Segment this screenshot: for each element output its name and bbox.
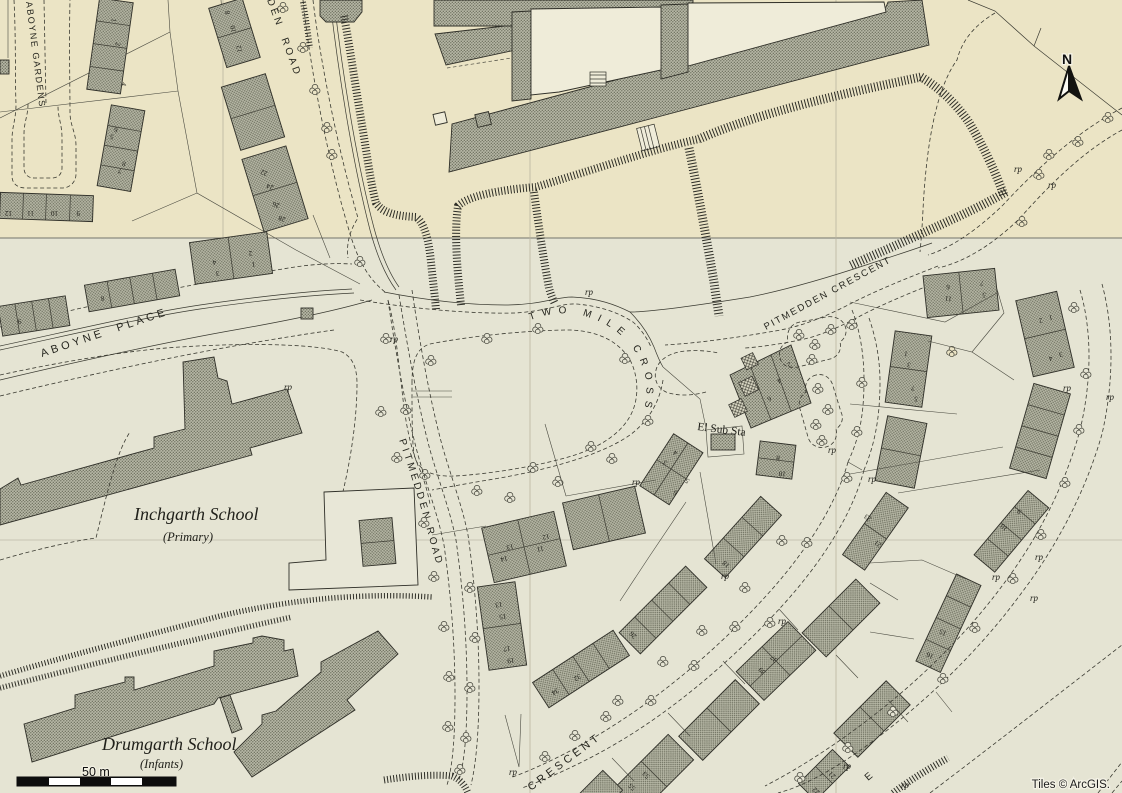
svg-text:rp: rp — [721, 571, 730, 581]
svg-text:rp: rp — [284, 382, 293, 392]
svg-text:Inchgarth School: Inchgarth School — [133, 504, 258, 524]
svg-text:N: N — [1062, 51, 1072, 67]
svg-text:11: 11 — [27, 209, 34, 217]
svg-text:rp: rp — [509, 767, 518, 777]
svg-text:Tiles © ArcGIS.: Tiles © ArcGIS. — [1032, 779, 1110, 791]
svg-text:rp: rp — [632, 477, 641, 487]
svg-text:10: 10 — [778, 469, 786, 478]
svg-text:rp: rp — [1106, 392, 1115, 402]
svg-text:9: 9 — [76, 209, 80, 217]
svg-text:rp: rp — [868, 474, 877, 484]
svg-text:rp: rp — [843, 761, 852, 771]
svg-text:rp: rp — [1063, 383, 1072, 393]
svg-text:10: 10 — [51, 209, 59, 217]
svg-text:rp: rp — [585, 287, 594, 297]
svg-text:rp: rp — [1030, 593, 1039, 603]
svg-text:12: 12 — [5, 209, 13, 217]
svg-text:rp: rp — [992, 572, 1001, 582]
svg-text:Drumgarth School: Drumgarth School — [101, 734, 237, 754]
svg-text:(Infants): (Infants) — [140, 757, 183, 771]
svg-text:rp: rp — [778, 616, 787, 626]
svg-text:rp: rp — [1035, 552, 1044, 562]
svg-text:(Primary): (Primary) — [163, 530, 213, 544]
svg-text:rp: rp — [828, 445, 837, 455]
svg-text:rp: rp — [1014, 164, 1023, 174]
svg-text:rp: rp — [1048, 180, 1057, 190]
svg-text:11: 11 — [944, 294, 952, 303]
